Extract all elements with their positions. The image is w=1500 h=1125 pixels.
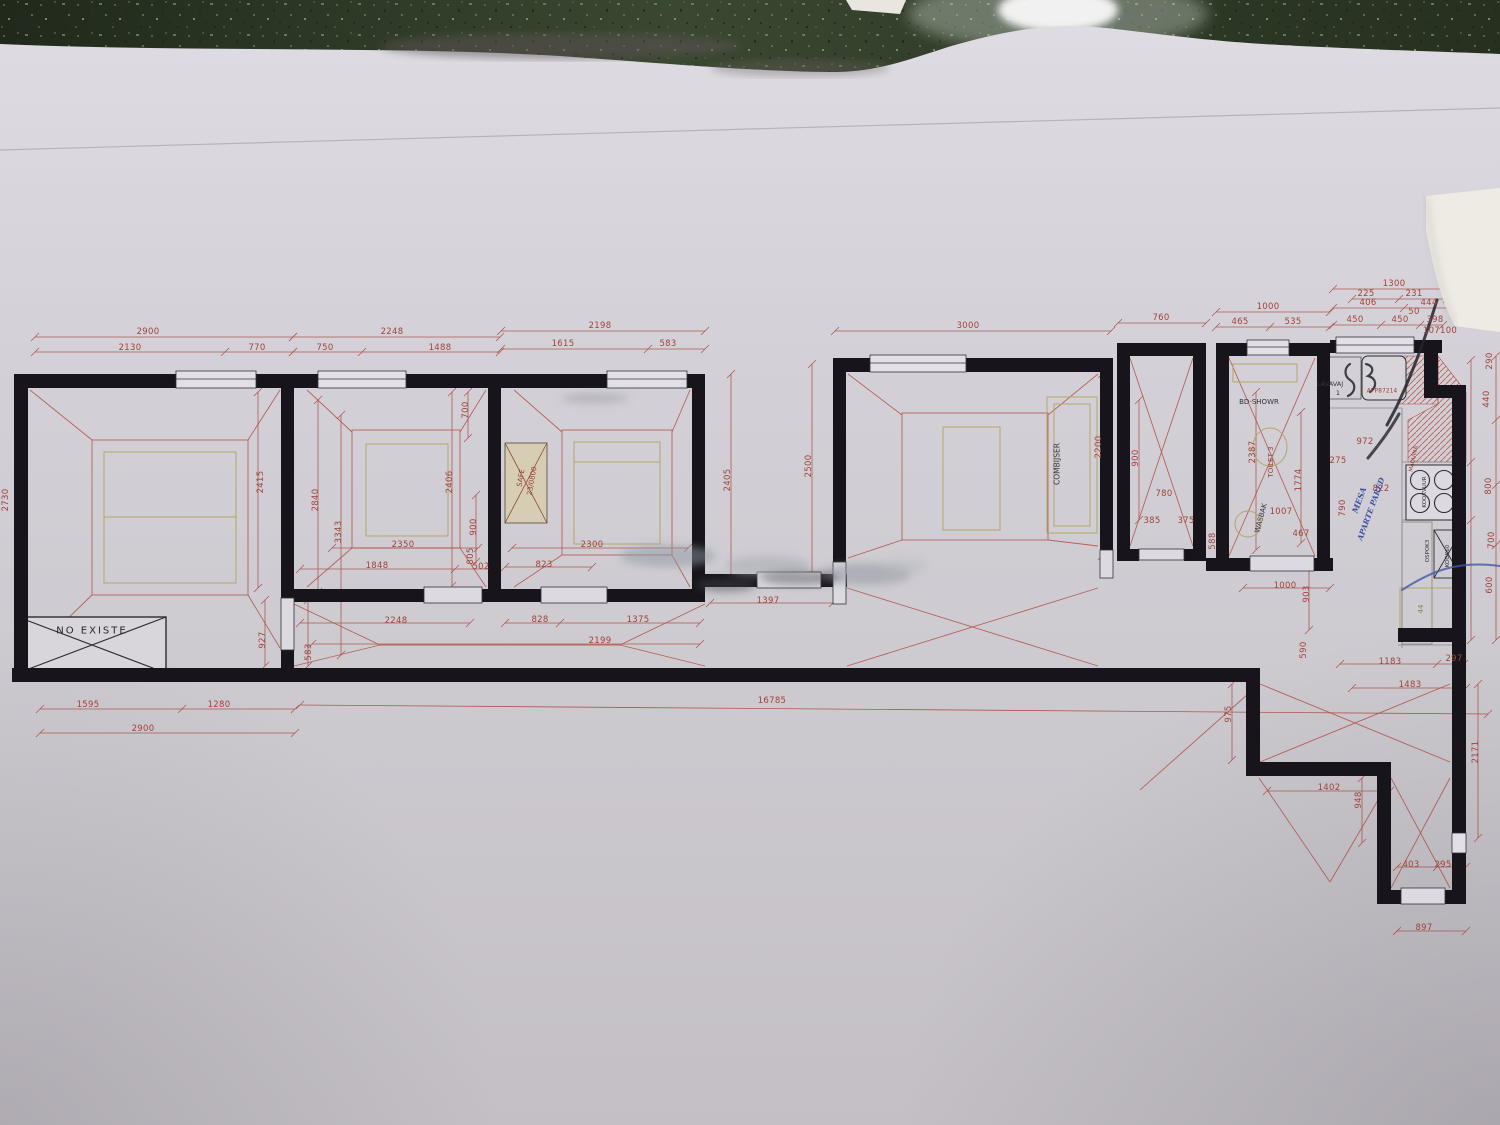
appliance — [1362, 356, 1406, 400]
paper-fold-shadow — [380, 33, 740, 59]
pencil-smudge — [561, 393, 629, 403]
floor-plan-photo: 2900213077022487501488219816155833000760… — [0, 0, 1500, 1125]
no-existe-box — [18, 617, 166, 673]
plan-photo-svg — [0, 0, 1500, 1125]
safe-box — [505, 443, 547, 523]
